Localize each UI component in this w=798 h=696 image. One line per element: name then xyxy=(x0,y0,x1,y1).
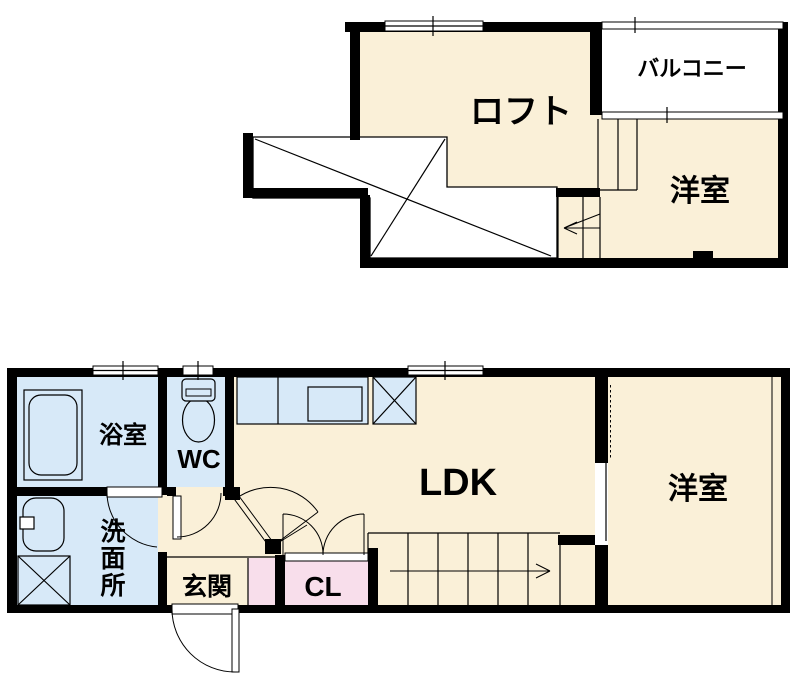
entrance-label: 玄関 xyxy=(182,572,232,601)
upper-bedroom-label: 洋室 xyxy=(670,174,730,208)
kitchen-counter xyxy=(237,377,368,424)
bathroom-label: 浴室 xyxy=(99,421,147,449)
entrance-door xyxy=(172,604,239,672)
refrigerator-space xyxy=(373,377,416,424)
upper-floor: ロフト バルコニー 洋室 xyxy=(243,16,788,268)
washroom-label-char: 面 xyxy=(100,545,125,573)
washroom-label-char: 洗 xyxy=(100,518,125,546)
ldk-label: LDK xyxy=(419,462,498,504)
washroom-label-char: 所 xyxy=(100,572,125,600)
lower-bedroom-label: 洋室 xyxy=(668,472,728,506)
balcony-label: バルコニー xyxy=(637,56,747,81)
closet-label: CL xyxy=(304,571,341,602)
lower-floor: 浴室 WC 洗 面 所 玄関 CL LDK 洋室 xyxy=(7,361,790,672)
loft-label: ロフト xyxy=(470,93,572,131)
floor-plan: ロフト バルコニー 洋室 xyxy=(0,0,798,696)
washroom-label: 洗 面 所 xyxy=(100,518,125,600)
floor-plan-page: ロフト バルコニー 洋室 xyxy=(0,0,798,696)
shoe-closet-area xyxy=(248,558,275,605)
toilet-label: WC xyxy=(177,444,221,474)
